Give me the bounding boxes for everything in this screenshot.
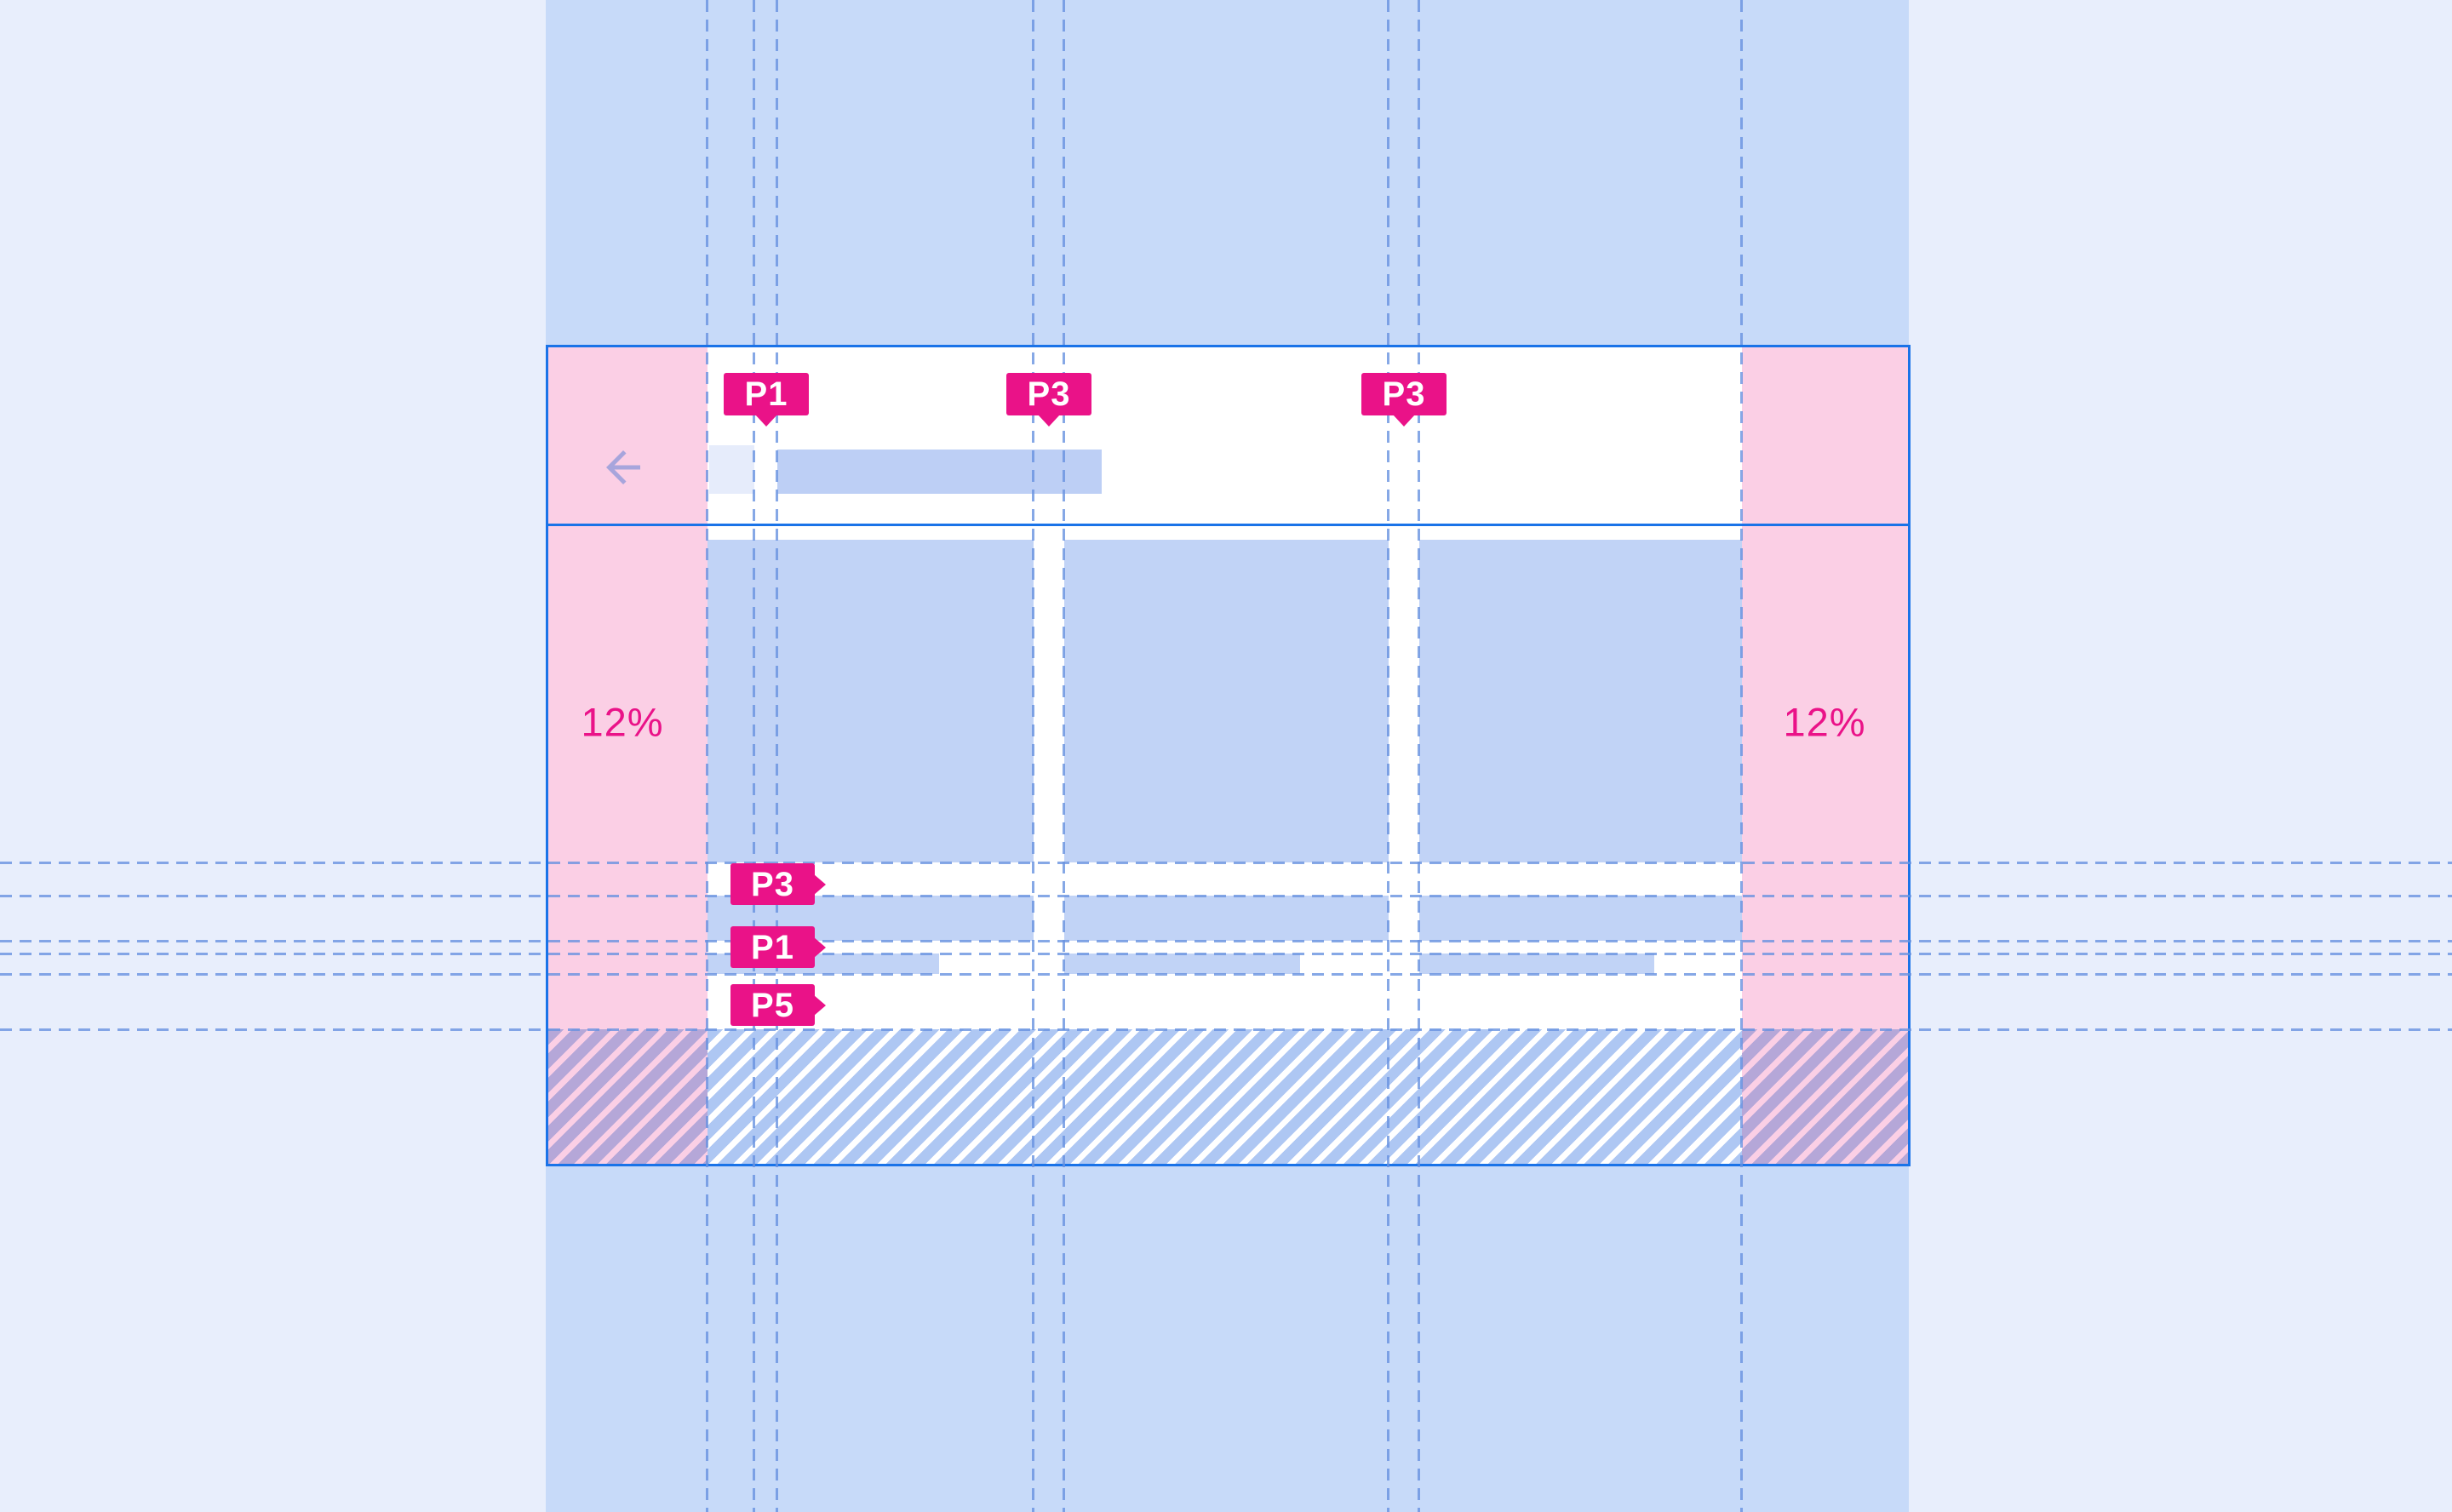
card-placeholder-2 — [1064, 540, 1389, 862]
marker-pointer-right-icon — [814, 937, 826, 958]
left-margin-percentage-label: 12% — [581, 699, 663, 746]
text-line-placeholder-3a — [1419, 896, 1742, 941]
guide-icon-end — [753, 0, 755, 1512]
card-placeholder-3 — [1419, 540, 1742, 862]
guide-rowB-bottom — [0, 973, 2452, 976]
guide-gutter1-start — [1032, 0, 1034, 1512]
card-placeholder-1 — [708, 540, 1034, 862]
footer-hatch-right-margin — [1742, 1029, 1908, 1164]
padding-marker-p1-top: P1 — [724, 373, 809, 415]
guide-card-bottom — [0, 862, 2452, 864]
padding-marker-p1-side: P1 — [730, 926, 815, 968]
text-line-placeholder-2b — [1064, 954, 1300, 974]
guide-content-left — [706, 0, 708, 1512]
padding-marker-p5-side: P5 — [730, 984, 815, 1026]
padding-marker-p3-top-2: P3 — [1361, 373, 1447, 415]
layout-spec-canvas: P1 P3 P3 P3 P1 P5 12% 12% — [0, 0, 2452, 1512]
leading-icon-placeholder — [709, 445, 754, 494]
guide-title-start — [776, 0, 778, 1512]
padding-marker-label: P3 — [751, 868, 794, 902]
right-margin-percentage-label: 12% — [1783, 699, 1865, 746]
marker-pointer-right-icon — [814, 874, 826, 895]
padding-marker-label: P5 — [751, 988, 794, 1022]
marker-pointer-down-icon — [1038, 415, 1060, 427]
guide-gutter2-end — [1418, 0, 1420, 1512]
text-line-placeholder-3b — [1419, 954, 1654, 974]
text-line-placeholder-2a — [1064, 896, 1389, 941]
guide-rowA-bottom — [0, 940, 2452, 942]
title-text-placeholder — [777, 450, 1102, 494]
back-button[interactable] — [598, 442, 649, 493]
guide-gutter1-end — [1063, 0, 1065, 1512]
padding-marker-p3-side: P3 — [730, 863, 815, 905]
footer-hatch-left-margin — [548, 1029, 708, 1164]
marker-pointer-right-icon — [814, 995, 826, 1016]
screen-mockup — [546, 345, 1911, 1166]
padding-marker-label: P3 — [1028, 377, 1071, 411]
padding-marker-label: P1 — [745, 377, 788, 411]
guide-content-right — [1740, 0, 1743, 1512]
guide-rowA-top — [0, 895, 2452, 897]
marker-pointer-down-icon — [1393, 415, 1415, 427]
footer-hatch-body — [708, 1029, 1742, 1164]
padding-marker-p3-top-1: P3 — [1006, 373, 1091, 415]
guide-gutter2-start — [1387, 0, 1389, 1512]
guide-footer-top — [0, 1028, 2452, 1031]
marker-pointer-down-icon — [755, 415, 777, 427]
arrow-back-icon — [598, 483, 649, 495]
padding-marker-label: P3 — [1383, 377, 1426, 411]
padding-marker-label: P1 — [751, 931, 794, 965]
guide-rowB-top — [0, 953, 2452, 955]
